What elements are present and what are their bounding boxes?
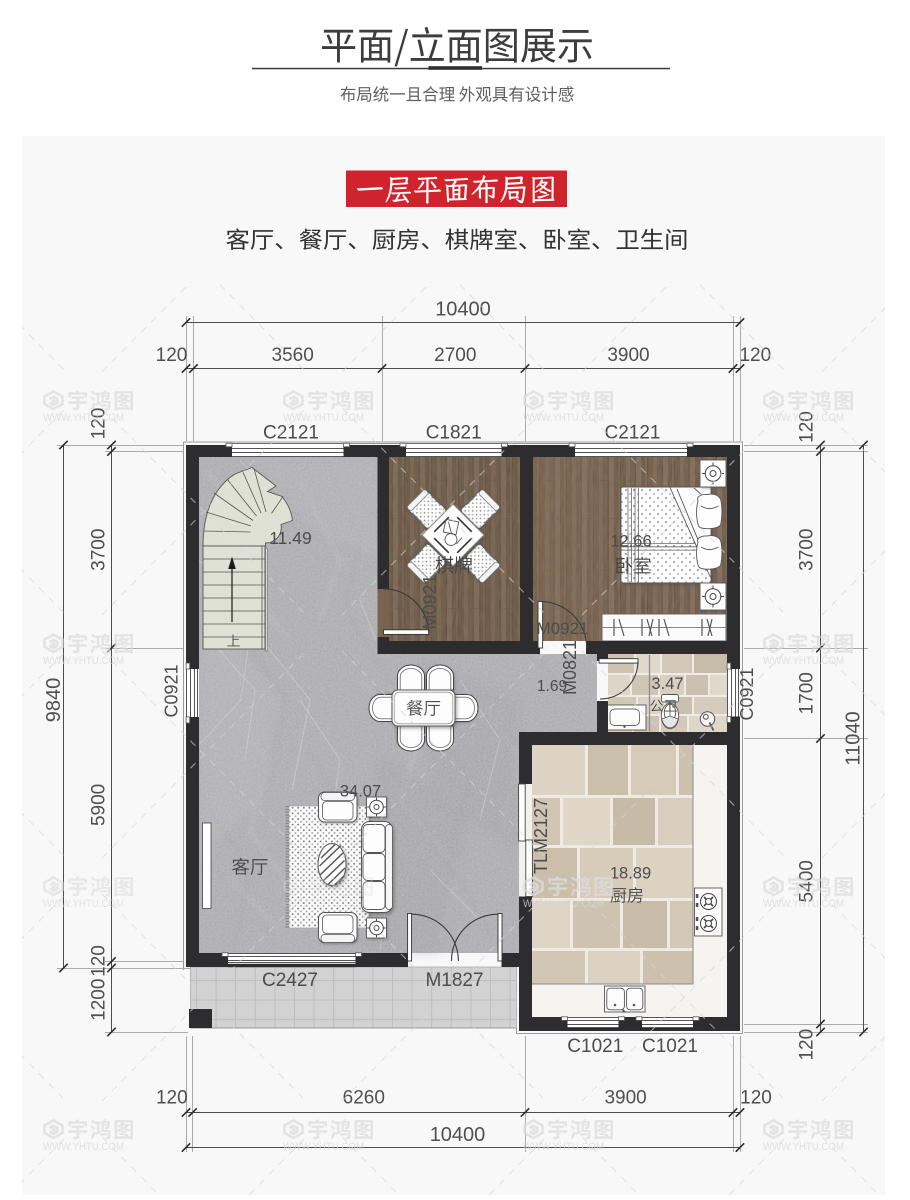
svg-text:3900: 3900	[607, 345, 649, 366]
svg-text:120: 120	[89, 945, 110, 977]
svg-text:120: 120	[797, 1029, 818, 1061]
svg-text:C2121: C2121	[605, 423, 661, 444]
svg-text:C1021: C1021	[642, 1036, 698, 1057]
svg-text:12.66: 12.66	[610, 533, 651, 551]
svg-text:M0821: M0821	[560, 640, 580, 695]
svg-text:C2121: C2121	[263, 423, 319, 444]
svg-text:9840: 9840	[43, 678, 65, 723]
svg-text:3.47: 3.47	[651, 675, 683, 693]
svg-text:C1021: C1021	[567, 1036, 623, 1057]
svg-text:11040: 11040	[843, 711, 865, 765]
svg-text:M0921: M0921	[420, 574, 440, 629]
svg-text:6260: 6260	[343, 1088, 385, 1109]
svg-text:C0921: C0921	[737, 667, 757, 720]
svg-text:M0921: M0921	[537, 619, 589, 638]
svg-text:120: 120	[156, 345, 188, 366]
svg-text:120: 120	[740, 1088, 772, 1109]
svg-text:5900: 5900	[89, 784, 110, 826]
svg-text:3700: 3700	[797, 529, 818, 571]
svg-text:3560: 3560	[272, 345, 314, 366]
svg-text:C0921: C0921	[162, 664, 182, 717]
svg-text:1200: 1200	[89, 979, 110, 1021]
svg-text:10400: 10400	[430, 1124, 486, 1146]
svg-text:TLM2127: TLM2127	[531, 798, 551, 874]
svg-text:3700: 3700	[89, 529, 110, 571]
svg-text:3900: 3900	[604, 1088, 646, 1109]
svg-text:120: 120	[156, 1088, 188, 1109]
svg-text:18.89: 18.89	[610, 865, 651, 883]
svg-text:1700: 1700	[797, 672, 818, 714]
svg-text:120: 120	[739, 345, 771, 366]
svg-text:34.07: 34.07	[340, 783, 381, 801]
svg-text:2700: 2700	[434, 345, 476, 366]
svg-text:C2427: C2427	[262, 970, 318, 991]
svg-text:C1821: C1821	[426, 423, 482, 444]
svg-text:11.49: 11.49	[269, 528, 312, 548]
svg-text:10400: 10400	[435, 299, 491, 321]
